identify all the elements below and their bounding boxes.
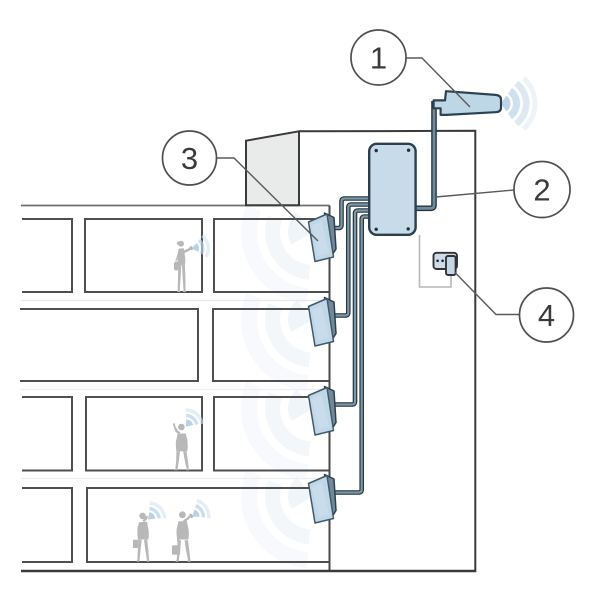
- svg-text:1: 1: [370, 41, 387, 76]
- svg-text:3: 3: [181, 141, 198, 176]
- svg-text:4: 4: [538, 298, 555, 333]
- svg-text:2: 2: [533, 173, 550, 208]
